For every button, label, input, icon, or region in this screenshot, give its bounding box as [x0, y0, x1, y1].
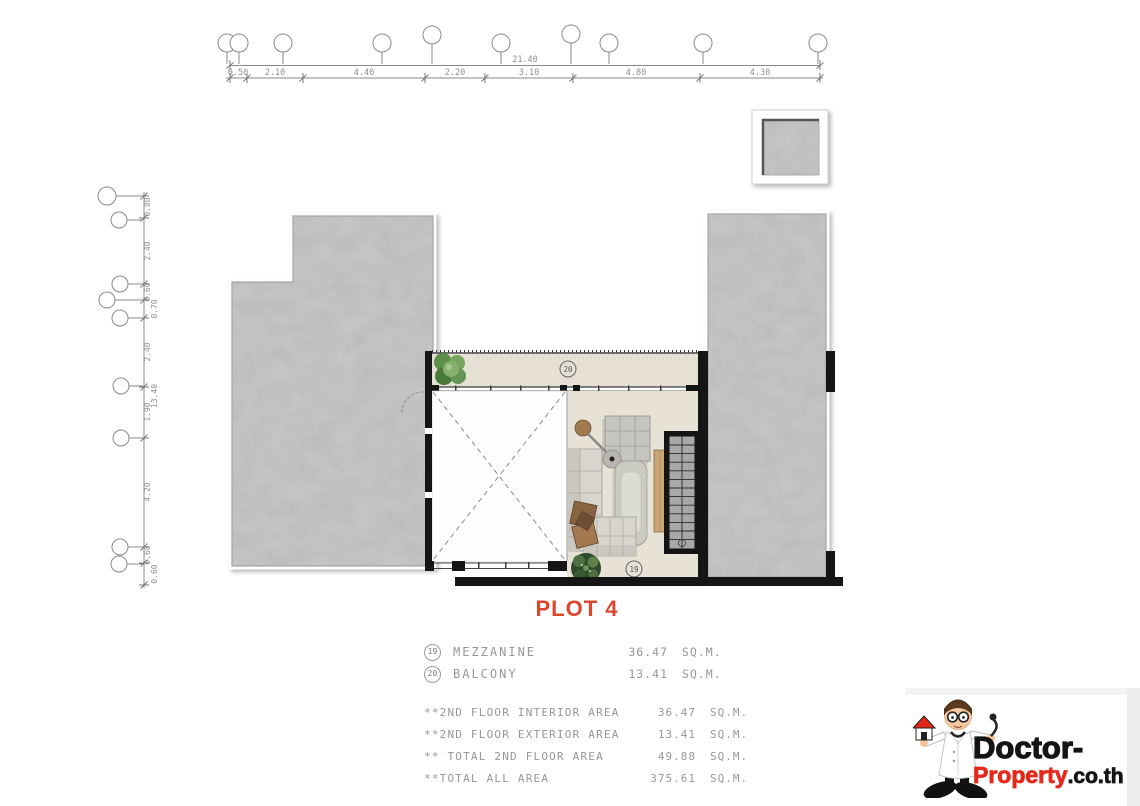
summary-row: **2ND FLOOR EXTERIOR AREA 13.41 SQ.M.: [424, 723, 734, 745]
brand-logo: Doctor- Property.co.th: [905, 688, 1140, 806]
left-dimension-line: 0.80 2.40 0.60 0.70 2.40 1.90 13.40 4.20…: [98, 187, 159, 589]
logo-background-edge: [1127, 688, 1140, 806]
svg-text:0.80: 0.80: [143, 197, 152, 216]
summary-label: **TOTAL ALL AREA: [424, 772, 638, 785]
house-icon: [913, 716, 935, 740]
summary-row: **TOTAL ALL AREA 375.61 SQ.M.: [424, 767, 734, 789]
balcony-railing: [432, 351, 698, 353]
legend-tag-19: 19: [424, 644, 441, 661]
summary-label: ** TOTAL 2ND FLOOR AREA: [424, 750, 638, 763]
roof-terrace-left: [232, 216, 433, 566]
void-bottom-windows: [425, 561, 567, 571]
summary-value: 49.88: [638, 750, 696, 763]
floor-plan-sheet: 21.40 0.50 2.10 4.40 2.20 3.10 4.80 4.30: [0, 0, 1140, 806]
svg-text:0.50: 0.50: [228, 68, 248, 78]
logo-word-doctor: Doctor-: [973, 732, 1124, 763]
svg-text:0.60: 0.60: [143, 282, 152, 301]
svg-text:3.10: 3.10: [519, 68, 539, 78]
svg-text:2.40: 2.40: [143, 241, 152, 260]
floor-plan-drawing: 21.40 0.50 2.10 4.40 2.20 3.10 4.80 4.30: [0, 0, 1140, 806]
svg-text:19: 19: [629, 565, 638, 574]
svg-text:0.70: 0.70: [150, 299, 159, 318]
summary-unit: SQ.M.: [710, 706, 762, 719]
top-dimension-labels: 21.40 0.50 2.10 4.40 2.20 3.10 4.80 4.30: [228, 55, 770, 78]
svg-text:0.60: 0.60: [150, 564, 159, 583]
legend-unit: SQ.M.: [682, 645, 734, 659]
legend-unit: SQ.M.: [682, 667, 734, 681]
svg-text:2.20: 2.20: [445, 68, 465, 78]
area-summary: **2ND FLOOR INTERIOR AREA 36.47 SQ.M. **…: [424, 701, 734, 789]
plot-title: PLOT 4: [477, 596, 677, 622]
svg-text:4.80: 4.80: [626, 68, 646, 78]
legend-row: 19 MEZZANINE 36.47 SQ.M.: [424, 641, 734, 663]
grid-bubbles-left: [98, 187, 143, 572]
summary-unit: SQ.M.: [710, 750, 762, 763]
summary-unit: SQ.M.: [710, 772, 762, 785]
mezzanine: 19: [567, 391, 699, 583]
legend-label: BALCONY: [453, 667, 606, 681]
top-dimension-line: 21.40 0.50 2.10 4.40 2.20 3.10 4.80 4.30: [218, 25, 827, 83]
staircase: [664, 431, 699, 554]
legend-label: MEZZANINE: [453, 645, 606, 659]
legend: 19 MEZZANINE 36.47 SQ.M. 20 BALCONY 13.4…: [424, 641, 734, 685]
logo-background-edge: [905, 688, 1140, 695]
svg-text:2.10: 2.10: [265, 68, 285, 78]
skylight-roof: [752, 110, 828, 184]
legend-tag-20: 20: [424, 666, 441, 683]
legend-row: 20 BALCONY 13.41 SQ.M.: [424, 663, 734, 685]
summary-row: **2ND FLOOR INTERIOR AREA 36.47 SQ.M.: [424, 701, 734, 723]
legend-value: 13.41: [606, 667, 668, 681]
logo-word-property: Property: [973, 762, 1068, 788]
summary-label: **2ND FLOOR INTERIOR AREA: [424, 706, 638, 719]
balcony: 20: [425, 351, 698, 392]
summary-label: **2ND FLOOR EXTERIOR AREA: [424, 728, 638, 741]
dim-overall-top: 21.40: [512, 55, 538, 65]
dim-overall-left: 13.40: [150, 384, 159, 408]
summary-value: 13.41: [638, 728, 696, 741]
svg-text:4.30: 4.30: [750, 68, 770, 78]
legend-value: 36.47: [606, 645, 668, 659]
summary-row: ** TOTAL 2ND FLOOR AREA 49.88 SQ.M.: [424, 745, 734, 767]
roof-terrace-right: [708, 214, 826, 577]
summary-unit: SQ.M.: [710, 728, 762, 741]
logo-word-domain: .co.th: [1068, 765, 1124, 788]
left-dimension-labels: 0.80 2.40 0.60 0.70 2.40 1.90 13.40 4.20…: [143, 197, 159, 583]
svg-text:2.40: 2.40: [143, 342, 152, 361]
balcony-tree: [434, 353, 466, 385]
svg-text:4.40: 4.40: [354, 68, 374, 78]
logo-text: Doctor- Property.co.th: [973, 732, 1124, 787]
svg-text:4.20: 4.20: [143, 482, 152, 501]
svg-text:20: 20: [563, 365, 573, 374]
svg-text:0.60: 0.60: [143, 545, 152, 564]
summary-value: 36.47: [638, 706, 696, 719]
summary-value: 375.61: [638, 772, 696, 785]
